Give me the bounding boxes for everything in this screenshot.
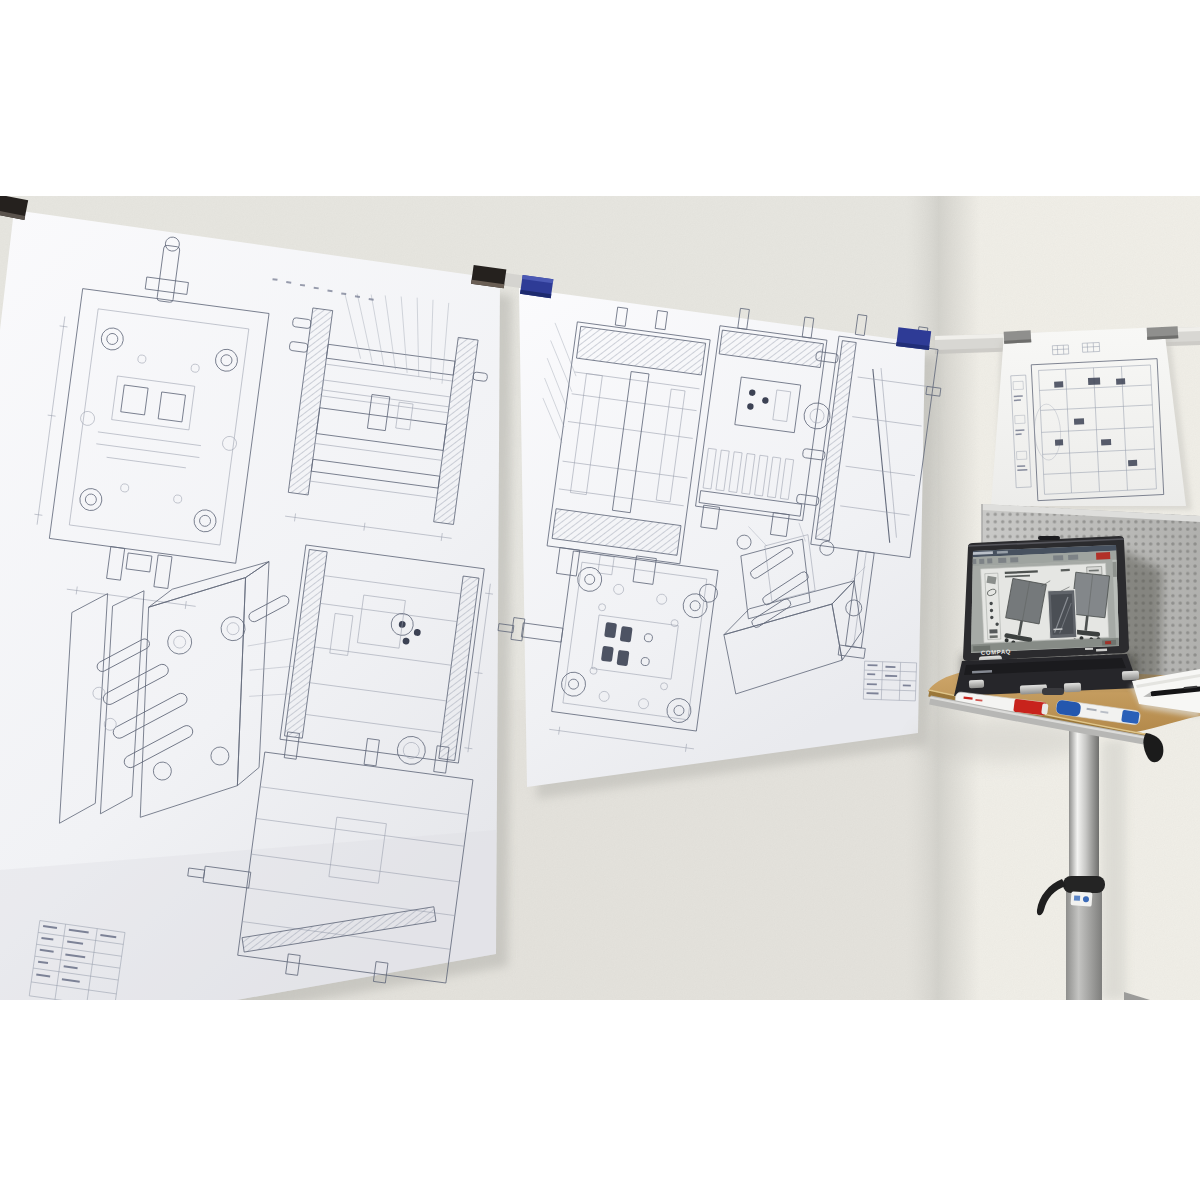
laptop: COMPAQ [954,536,1162,700]
bezel-label-1 [1085,648,1093,650]
page-inset-detail [1048,590,1077,639]
column-upper-chrome [1069,720,1099,886]
column-clamp-ring [1063,876,1105,893]
lid-latch [1038,536,1060,540]
front-latch-mid-right [1064,683,1081,693]
clip-blue-right [896,327,931,350]
front-latch-right [1122,671,1139,681]
photo-canvas: COMPAQ [0,0,1200,1200]
taskbar-alert [1105,641,1111,644]
titlebar-text-2 [997,551,1008,554]
bezel-label-2 [1096,649,1107,652]
laptop-screen [965,542,1126,657]
clip-gray-left [1004,330,1032,343]
scene-photo: COMPAQ [0,0,1200,1200]
column-sticker [1071,891,1093,906]
front-latch-center [1042,688,1064,695]
screen-red-badge [1096,552,1110,560]
drawing-sheet-3 [991,327,1186,506]
column-wall-shadow [1102,740,1126,1000]
front-latch-left [969,680,984,689]
clip-gray-right [1147,326,1179,340]
